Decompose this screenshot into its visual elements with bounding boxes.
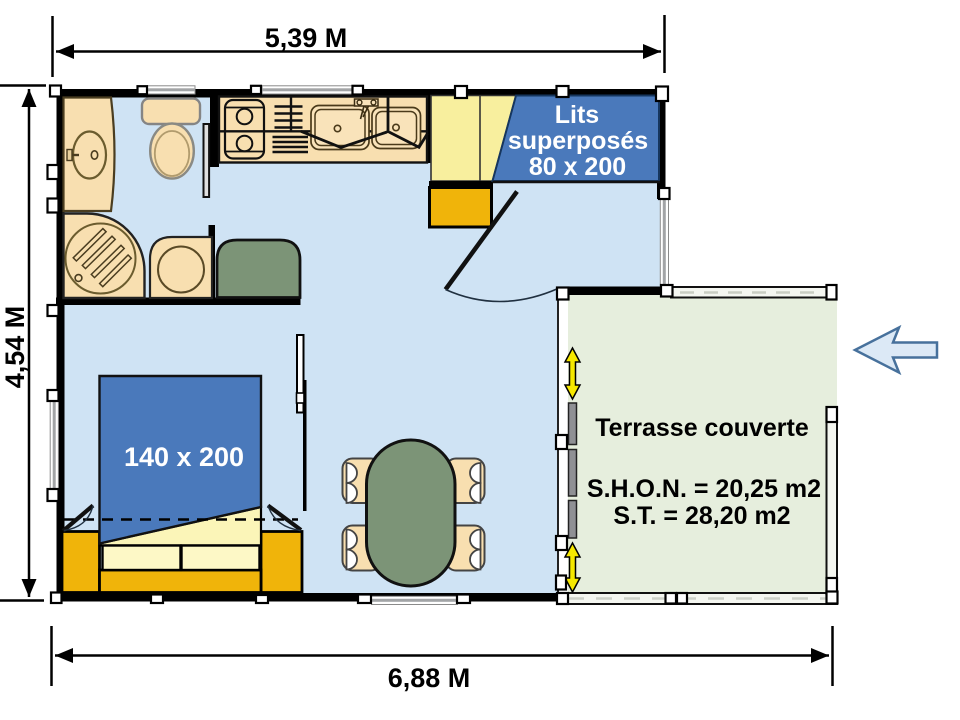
svg-text:S.T. = 28,20 m2: S.T. = 28,20 m2	[613, 502, 790, 530]
svg-text:5,39 M: 5,39 M	[265, 23, 348, 53]
svg-text:6,88 M: 6,88 M	[388, 663, 471, 693]
svg-text:S.H.O.N. = 20,25 m2: S.H.O.N. = 20,25 m2	[587, 475, 821, 503]
svg-text:80 x 200: 80 x 200	[529, 153, 626, 181]
svg-text:4,54 M: 4,54 M	[0, 306, 30, 389]
svg-text:Terrasse couverte: Terrasse couverte	[595, 414, 809, 442]
svg-text:superposés: superposés	[508, 127, 648, 155]
svg-text:Lits: Lits	[555, 101, 599, 129]
svg-text:140 x 200: 140 x 200	[124, 442, 244, 472]
